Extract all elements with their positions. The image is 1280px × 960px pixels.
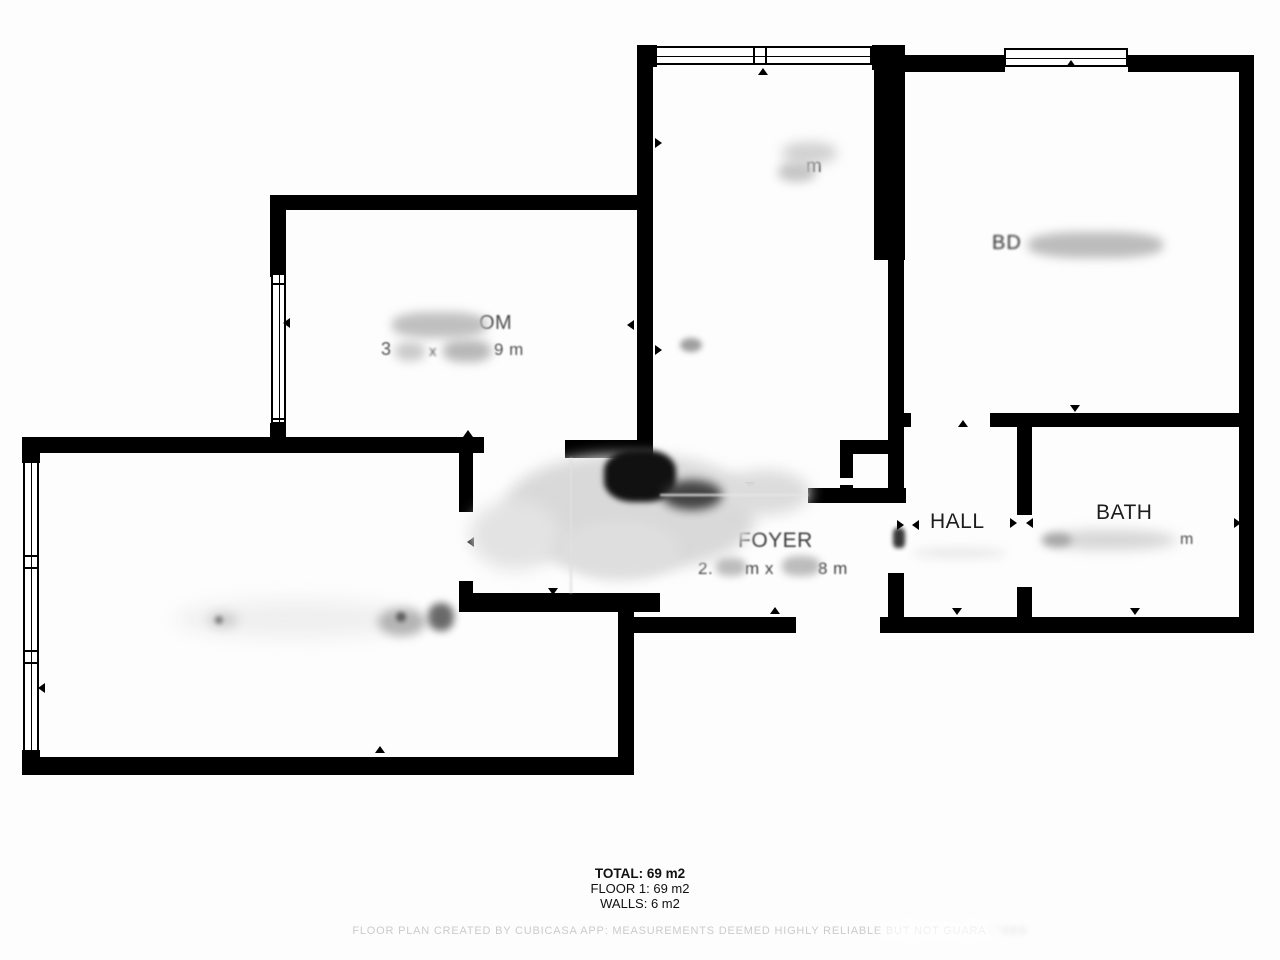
measurement-arrow-icon (655, 138, 662, 148)
window (23, 461, 39, 752)
measurement-arrow-icon (548, 588, 558, 595)
wall-segment (1128, 55, 1254, 72)
measurement-arrow-icon (1010, 518, 1017, 528)
smudge (680, 338, 702, 352)
measurement-arrow-icon (1130, 420, 1140, 427)
window-mullion (765, 48, 767, 63)
wall-segment (895, 55, 1005, 72)
measurement-arrow-icon (958, 420, 968, 427)
room-dims-top-middle: m (806, 156, 822, 178)
measurement-arrow-icon (893, 232, 900, 242)
room-dims-foyer-1: 2. (698, 559, 713, 579)
wall-segment (565, 440, 652, 458)
window-mullion (25, 555, 37, 557)
smudge (662, 480, 722, 510)
smudge (893, 528, 905, 548)
room-label-bedroom-right: BD (992, 232, 1022, 255)
window-mullion (25, 567, 37, 569)
wall-segment (897, 413, 911, 427)
smudge (720, 470, 810, 515)
wall-segment (270, 195, 286, 277)
wall-segment (840, 440, 853, 478)
measurement-arrow-icon (1026, 518, 1033, 528)
wall-segment (808, 488, 906, 503)
window (271, 273, 286, 424)
wall-segment (882, 617, 1254, 633)
window-mullion (25, 650, 37, 652)
wall-segment (459, 452, 473, 512)
smudge (1028, 232, 1163, 258)
measurement-arrow-icon (467, 537, 474, 547)
smudge (1042, 533, 1072, 547)
smudge (660, 494, 808, 496)
measurement-arrow-icon (627, 320, 634, 330)
room-label-hall: HALL (930, 510, 985, 534)
smudge (505, 455, 755, 570)
room-label-bedroom-left: OM (479, 312, 512, 335)
measurement-arrow-icon (38, 683, 45, 693)
measurement-arrow-icon (745, 482, 755, 489)
smudge (215, 616, 223, 624)
smudge (392, 312, 487, 338)
wall-segment (459, 593, 660, 612)
measurement-arrow-icon (770, 607, 780, 614)
wall-segment (880, 617, 905, 633)
summary-walls: WALLS: 6 m2 (0, 896, 1280, 911)
measurement-arrow-icon (1066, 60, 1076, 67)
wall-segment (22, 437, 484, 453)
summary-floor1: FLOOR 1: 69 m2 (0, 881, 1280, 896)
measurement-arrow-icon (460, 200, 470, 207)
smudge (378, 608, 426, 636)
window-mullion (25, 662, 37, 664)
room-dims-bath: m (1180, 531, 1194, 549)
measurement-arrow-icon (952, 608, 962, 615)
room-label-bath: BATH (1096, 501, 1152, 525)
smudge (1042, 530, 1177, 550)
wall-segment (1017, 425, 1032, 515)
wall-segment (22, 757, 634, 775)
window-mullion (753, 48, 755, 63)
room-dims-bedroom-left: 3 (381, 339, 392, 360)
room-dims-foyer-2: 8 m (818, 559, 848, 579)
window (655, 46, 872, 65)
wall-segment (874, 45, 905, 260)
measurement-arrow-icon (655, 345, 662, 355)
measurement-arrow-icon (897, 520, 904, 530)
measurement-arrow-icon (375, 746, 385, 753)
smudge (208, 612, 238, 628)
window-mullion (273, 283, 284, 285)
room-label-foyer: FOYER (738, 529, 813, 553)
smudge (428, 603, 454, 631)
smudge (570, 458, 572, 593)
wall-segment (840, 485, 853, 503)
wall-segment (1239, 55, 1254, 633)
room-dims-foyer-mid: m x (745, 559, 774, 579)
room-dims-bedroom-left-x: x (429, 343, 437, 360)
summary-total: TOTAL: 69 m2 (0, 866, 1280, 881)
smudge (912, 548, 1007, 558)
wall-segment (22, 437, 40, 463)
wall-segment (888, 255, 904, 503)
window-mullion (273, 418, 284, 420)
measurement-arrow-icon (283, 318, 290, 328)
smudge (470, 500, 560, 570)
measurement-arrow-icon (1130, 608, 1140, 615)
measurement-arrow-icon (1070, 405, 1080, 412)
watermark-main: FLOOR PLAN CREATED BY CUBICASA APP: MEAS… (352, 925, 986, 937)
wall-segment (637, 45, 653, 485)
smudge (443, 340, 491, 362)
area-summary: TOTAL: 69 m2 FLOOR 1: 69 m2 WALLS: 6 m2 (0, 866, 1280, 911)
smudge (396, 612, 406, 622)
measurement-arrow-icon (1234, 518, 1241, 528)
smudge (560, 520, 680, 580)
watermark-tail: NTEED (986, 925, 1027, 937)
watermark-text: FLOOR PLAN CREATED BY CUBICASA APP: MEAS… (50, 925, 1280, 937)
measurement-arrow-icon (463, 430, 473, 437)
smudge (175, 600, 415, 638)
measurement-arrow-icon (912, 520, 919, 530)
measurement-arrow-icon (758, 68, 768, 75)
wall-segment (632, 617, 796, 633)
smudge (782, 556, 820, 576)
smudge (716, 558, 746, 576)
smudge (395, 342, 425, 361)
floor-plan: m BD OM 3 x 9 m FOYER 2. m x 8 m HALL BA… (0, 0, 1280, 960)
room-dims-bedroom-left-2: 9 m (494, 340, 524, 360)
